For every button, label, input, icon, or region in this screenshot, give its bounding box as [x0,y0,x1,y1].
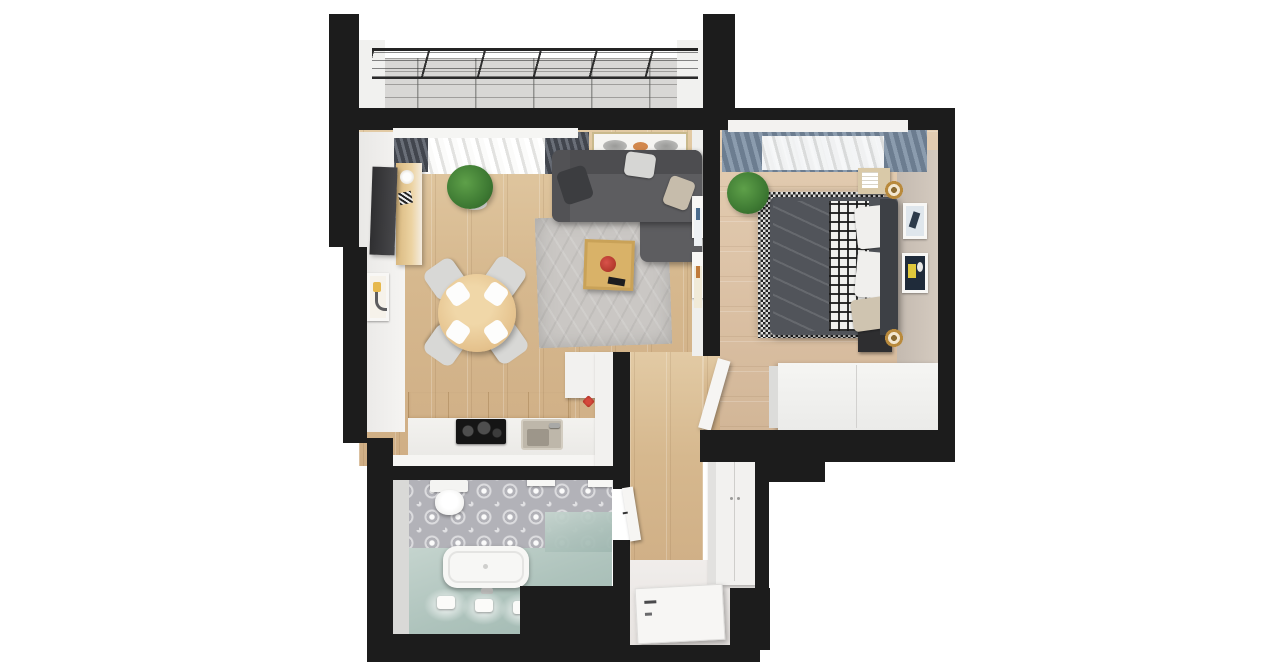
bed-duvet-blue [773,201,829,331]
bedside-lamp-top [884,180,904,200]
divider-art2-mark [696,266,700,278]
entrance-door-handle [644,600,656,604]
bedroom-wardrobe [778,363,938,430]
entrance-door-leaf [635,584,726,645]
art2-yellow-shape [908,264,916,278]
balcony [359,30,703,112]
wall-corridor-kitchen-upper [613,352,630,489]
console-decor-vases [400,170,414,184]
wardrobe-knob-1 [730,497,733,500]
bedroom-wall-art-1 [903,203,927,239]
sink-basin [527,429,549,446]
bathtub-drain [483,564,488,569]
kitchen-sink [521,419,563,450]
wardrobe-knob-2 [737,497,740,500]
divider-art1-mark [696,208,700,220]
art1-dark-shape [909,211,921,228]
balcony-railing [372,48,698,79]
wall-bathroom-left [367,438,393,662]
bathroom-door-handle [623,512,628,515]
living-left-wall-art [367,273,389,321]
cooktop [456,419,506,444]
nightstand-books [862,172,878,188]
wall-bedroom-right [938,108,955,462]
wall-hallway-right [755,437,769,590]
bath-wall-light-2 [475,599,493,612]
wall-left-upper [329,14,359,247]
floor-plan-canvas [0,0,1280,667]
wall-kitchen-bathroom [393,466,615,480]
bed-headboard [880,199,898,335]
bathtub [443,546,529,588]
sink-faucet [549,423,560,428]
wall-divider-living-bedroom [703,126,720,356]
kitchen-upper-cabinets [408,392,571,420]
dining-table [438,274,516,352]
art2-white-shape [917,262,923,272]
shower-glass-area [545,512,612,552]
art-yellow-shape [373,282,381,292]
wall-entry-right-step [730,588,770,650]
bedroom-window-sill [728,120,908,132]
tv-screen [369,167,397,256]
wall-entry-bottom [613,645,760,662]
bathroom-left-wall-face [393,478,409,634]
wall-left-lower [343,247,367,443]
wall-step-below-bedroom [768,452,825,482]
bedroom-wall-art-2 [902,253,928,293]
red-bowl [600,256,616,272]
hallway-floor [630,352,703,588]
entrance-door-lock [645,612,652,615]
wall-corridor-kitchen-lower [613,540,630,590]
art-gray-curve [375,292,387,311]
bath-wall-light-1 [437,596,455,609]
bedroom-plant [727,172,769,214]
bedroom-wardrobe-side [769,366,778,428]
wall-bathroom-corner-block [520,586,630,638]
toilet-bowl [435,490,464,515]
bedside-lamp-bottom [884,328,904,348]
sofa-pillow-light [623,151,656,179]
living-plant [447,165,493,209]
wardrobe-seam [734,441,735,581]
wall-bedroom-bottom [700,430,955,462]
living-window-sill [393,128,578,138]
wall-balcony-right-column [703,14,735,114]
bedroom-curtain-white [762,136,884,170]
bedroom-wardrobe-seam [856,365,857,428]
wall-bathroom-bottom [367,634,630,662]
